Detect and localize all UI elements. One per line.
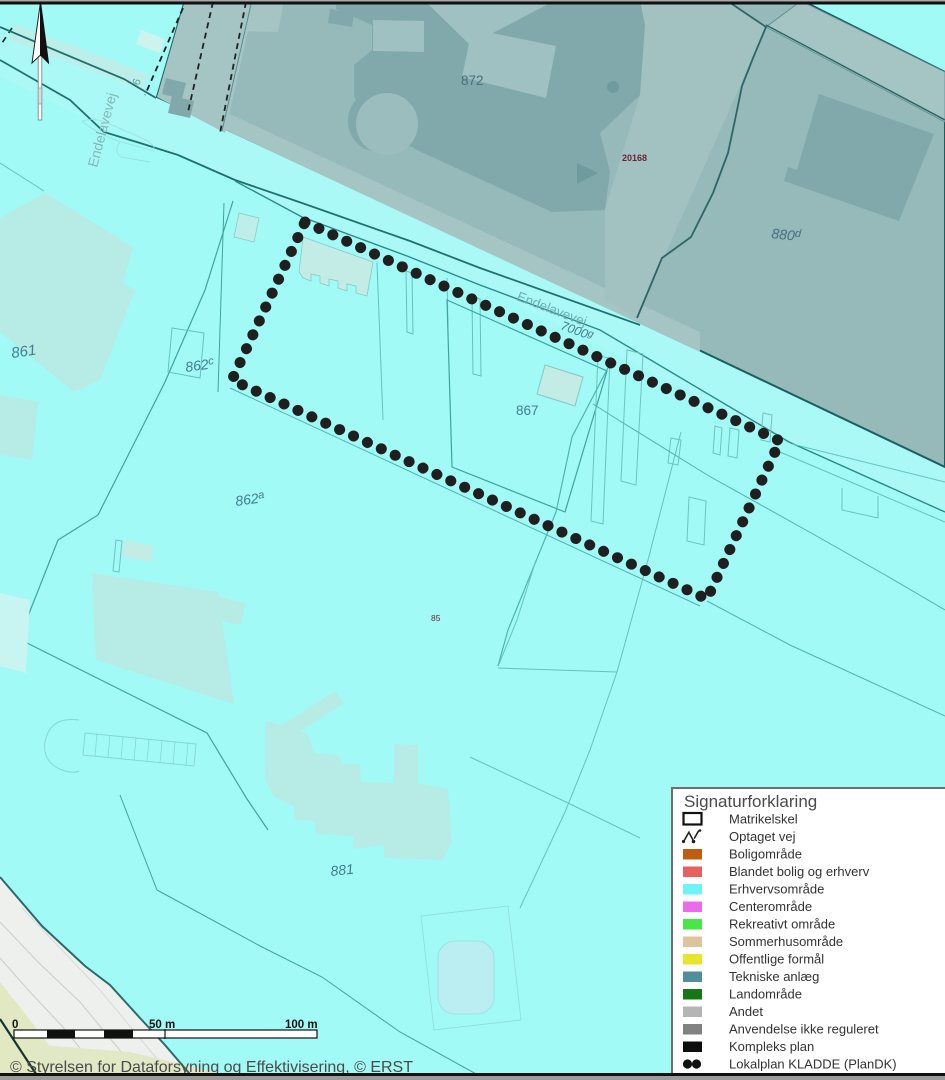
svg-text:881: 881 [330,861,355,879]
svg-text:Andet: Andet [729,1004,763,1019]
svg-text:Optaget vej: Optaget vej [729,829,796,844]
svg-text:867: 867 [516,403,539,418]
svg-text:0: 0 [12,1019,18,1031]
svg-text:Anvendelse ikke reguleret: Anvendelse ikke reguleret [729,1022,879,1037]
svg-text:Signaturforklaring: Signaturforklaring [684,792,817,811]
svg-text:Blandet bolig og erhverv: Blandet bolig og erhverv [729,864,870,879]
svg-text:85: 85 [431,613,441,623]
svg-text:Sommerhusområde: Sommerhusområde [729,934,843,949]
svg-text:Landområde: Landområde [729,987,802,1002]
svg-text:50 m: 50 m [149,1019,175,1031]
svg-text:100 m: 100 m [285,1019,318,1031]
svg-text:Centerområde: Centerområde [729,899,812,914]
svg-text:Boligområde: Boligområde [729,847,802,862]
svg-text:Rekreativt område: Rekreativt område [729,917,835,932]
svg-text:Kompleks plan: Kompleks plan [729,1039,814,1054]
svg-text:Tekniske anlæg: Tekniske anlæg [729,969,819,984]
svg-text:Lokalplan KLADDE (PlanDK): Lokalplan KLADDE (PlanDK) [729,1057,897,1072]
svg-text:872: 872 [461,73,484,88]
svg-text:20168: 20168 [622,153,647,163]
svg-text:861: 861 [10,342,37,362]
svg-text:Matrikelskel: Matrikelskel [729,812,798,827]
svg-text:Offentlige formål: Offentlige formål [729,952,824,967]
svg-text:Erhvervsområde: Erhvervsområde [729,882,824,897]
